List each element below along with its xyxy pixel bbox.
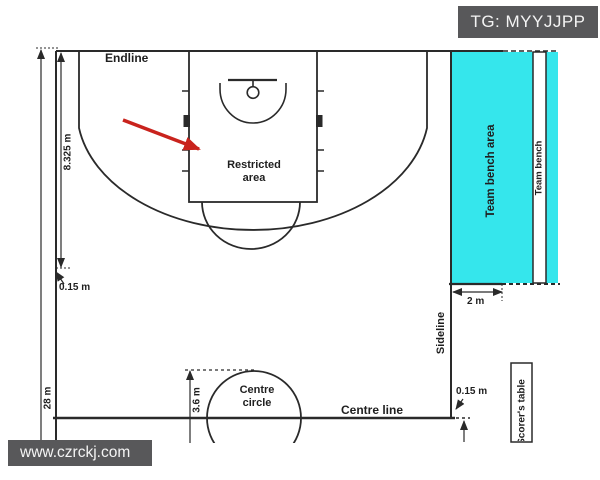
sideline-label: Sideline <box>435 312 447 354</box>
watermark-top-right: TG: MYYJJPP <box>458 6 598 38</box>
dim-28m-label: 28 m <box>43 387 54 410</box>
dim-015m-left-label: 0.15 m <box>59 282 90 293</box>
scorers-table-box: Scorer's table <box>511 363 532 441</box>
dim-2m-label: 2 m <box>467 296 484 307</box>
dim-36m-label: 3.6 m <box>192 387 203 413</box>
scorers-table-label: Scorer's table <box>517 379 528 441</box>
team-bench-label: Team bench <box>534 141 545 196</box>
court-diagram: Endline Restricted area Centre circle Ce… <box>0 0 600 480</box>
restricted-area-label: Restricted area <box>222 159 286 185</box>
centre-circle-label: Centre circle <box>232 384 282 410</box>
endline-label: Endline <box>105 51 148 65</box>
dim-015m-right-label: 0.15 m <box>456 386 487 397</box>
court-linework <box>0 0 600 480</box>
team-bench-area-label: Team bench area <box>485 124 497 217</box>
dim-8325m-label: 8.325 m <box>63 134 74 171</box>
watermark-bottom-left: www.czrckj.com <box>8 440 152 466</box>
centre-line-label: Centre line <box>341 403 403 417</box>
